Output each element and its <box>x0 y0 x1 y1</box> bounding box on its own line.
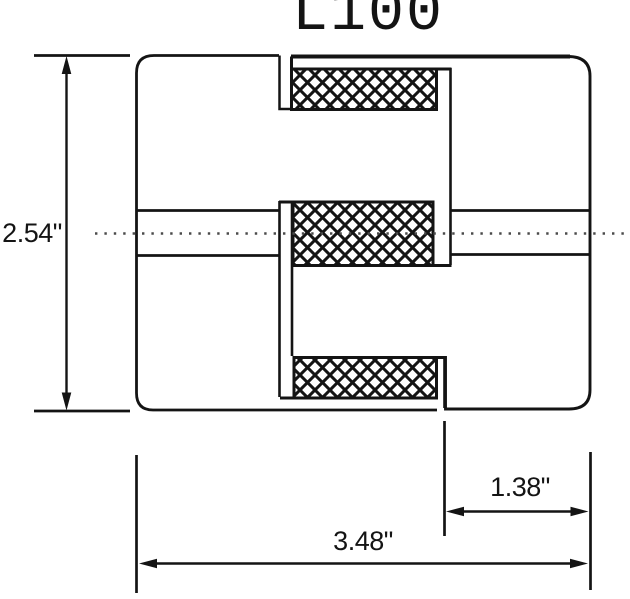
coupling-body <box>95 56 629 411</box>
dim-height-arrow-down <box>62 393 72 411</box>
technical-drawing: L100 2.54" 3.48" 1.38" <box>0 0 630 599</box>
drawing-title: L100 <box>288 0 448 44</box>
right-hub-outline <box>446 57 591 410</box>
dim-hub-arrow-right <box>571 507 589 517</box>
spider-hatch-top <box>292 69 437 110</box>
dim-overall-arrow-right <box>570 559 588 569</box>
spider-hatch-bottom <box>294 358 437 399</box>
dim-overall-length-label: 3.48" <box>301 528 425 555</box>
left-hub-top-slot <box>280 56 292 110</box>
left-jaw-post <box>280 201 293 397</box>
dim-height-label: 2.54" <box>0 220 64 247</box>
dim-hub-arrow-left <box>446 507 464 517</box>
coupling-cross-section-svg <box>0 0 630 599</box>
dim-hub-length-label: 1.38" <box>458 474 582 501</box>
spider-hatch-middle <box>293 202 433 266</box>
dim-overall-arrow-left <box>139 559 157 569</box>
dim-height-arrow-up <box>62 56 72 74</box>
